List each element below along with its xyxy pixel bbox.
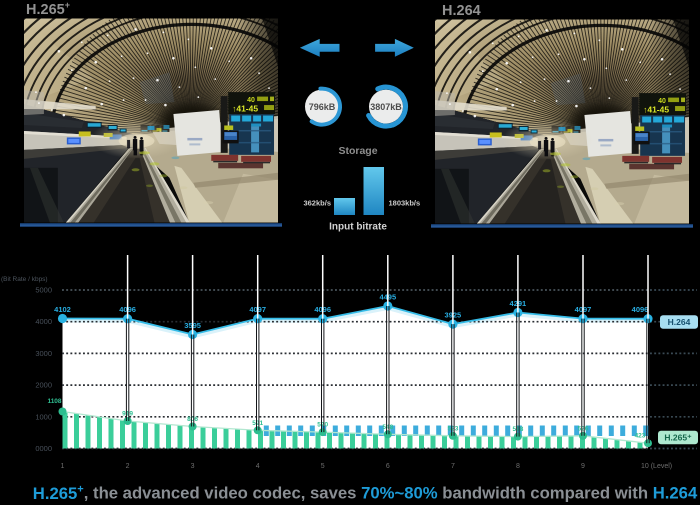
svg-text:4: 4 [256, 463, 260, 470]
svg-text:6: 6 [386, 463, 390, 470]
svg-text:4102: 4102 [54, 305, 71, 314]
svg-text:423: 423 [635, 433, 646, 440]
svg-text:1: 1 [61, 463, 65, 470]
svg-text:3000: 3000 [35, 349, 52, 358]
svg-text:1000: 1000 [35, 412, 52, 421]
svg-text:5000: 5000 [35, 286, 52, 295]
svg-text:0000: 0000 [35, 444, 52, 453]
svg-text:796kB: 796kB [309, 102, 336, 112]
svg-text:5: 5 [321, 463, 325, 470]
svg-text:H.265⁺: H.265⁺ [664, 432, 692, 442]
svg-text:591: 591 [252, 420, 263, 427]
svg-text:H.264: H.264 [668, 317, 691, 327]
svg-text:4000: 4000 [35, 317, 52, 326]
svg-text:518: 518 [512, 426, 523, 433]
svg-text:9: 9 [581, 463, 585, 470]
svg-text:570: 570 [317, 422, 328, 429]
svg-text:523: 523 [447, 425, 458, 432]
svg-text:10 (Level): 10 (Level) [641, 463, 672, 470]
svg-text:2000: 2000 [35, 381, 52, 390]
svg-text:3807kB: 3807kB [370, 102, 402, 112]
svg-text:7: 7 [451, 463, 455, 470]
svg-text:3: 3 [191, 463, 195, 470]
svg-text:4096: 4096 [632, 305, 649, 314]
svg-text:806: 806 [187, 416, 198, 423]
svg-text:548: 548 [382, 424, 393, 431]
svg-text:1803kb/s: 1803kb/s [389, 199, 421, 208]
svg-text:Storage: Storage [338, 145, 377, 157]
svg-text:Input bitrate: Input bitrate [329, 222, 387, 233]
svg-text:919: 919 [122, 411, 133, 418]
svg-text:8: 8 [516, 463, 520, 470]
svg-text:1108: 1108 [47, 398, 61, 405]
svg-text:362kb/s: 362kb/s [303, 199, 331, 208]
svg-text:526: 526 [578, 425, 589, 432]
svg-text:2: 2 [126, 463, 130, 470]
svg-text:(Bit Rate / kbps): (Bit Rate / kbps) [1, 276, 48, 283]
